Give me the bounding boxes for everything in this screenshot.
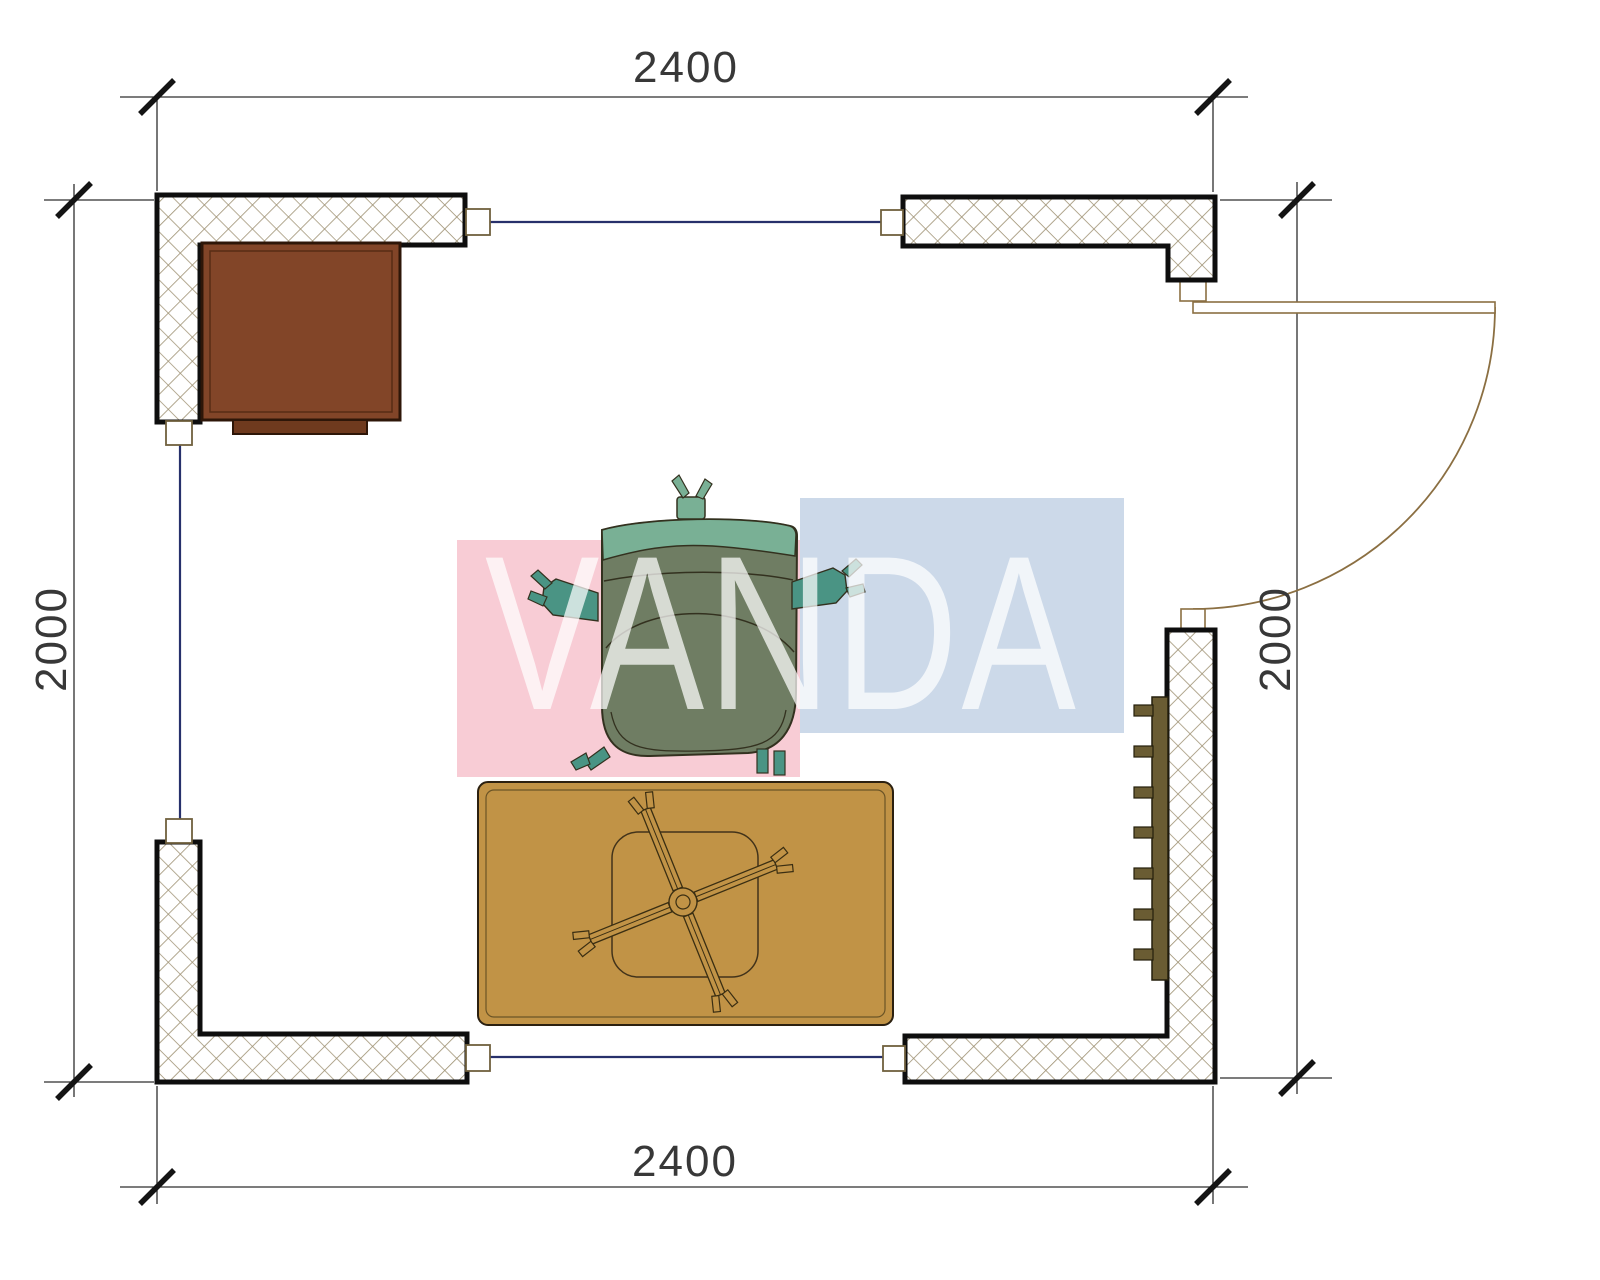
radiator-fin xyxy=(1134,787,1153,798)
door xyxy=(1180,281,1495,629)
dimension-label-right: 2000 xyxy=(1252,489,1300,789)
door-leaf xyxy=(1193,302,1495,313)
headrest-prong xyxy=(696,479,712,499)
door-jamb-block xyxy=(1181,609,1205,629)
cabinet-body xyxy=(202,243,400,420)
rug xyxy=(478,752,893,1053)
cabinet xyxy=(202,243,400,434)
radiator-fin xyxy=(1134,705,1153,716)
door-jamb-block xyxy=(1180,281,1206,301)
dimension-label-left: 2000 xyxy=(28,489,76,789)
window-end-block xyxy=(466,209,490,235)
radiator-fin xyxy=(1134,746,1153,757)
door-swing-arc xyxy=(1193,307,1495,609)
window-end-block xyxy=(883,1046,905,1071)
wall-top-right xyxy=(903,197,1215,280)
wall-bottom-left xyxy=(157,842,467,1082)
dimension-label-bottom: 2400 xyxy=(535,1138,835,1186)
dimension-label-top: 2400 xyxy=(536,44,836,92)
radiator-fin xyxy=(1134,949,1153,960)
watermark-text: VANDA xyxy=(470,500,1094,766)
window-end-block xyxy=(881,210,903,235)
headrest-prong xyxy=(672,475,689,498)
radiator-fin xyxy=(1134,827,1153,838)
dimension-top xyxy=(120,80,1248,192)
radiator-fin xyxy=(1134,868,1153,879)
floor-plan-canvas: VANDA 2400 2400 2000 2000 xyxy=(0,0,1600,1280)
window-end-block xyxy=(166,421,192,445)
window-end-block xyxy=(466,1045,490,1071)
radiator-body xyxy=(1152,697,1168,980)
radiator-fin xyxy=(1134,909,1153,920)
cabinet-base xyxy=(233,420,367,434)
window-end-block xyxy=(166,819,192,843)
radiator xyxy=(1134,697,1168,980)
